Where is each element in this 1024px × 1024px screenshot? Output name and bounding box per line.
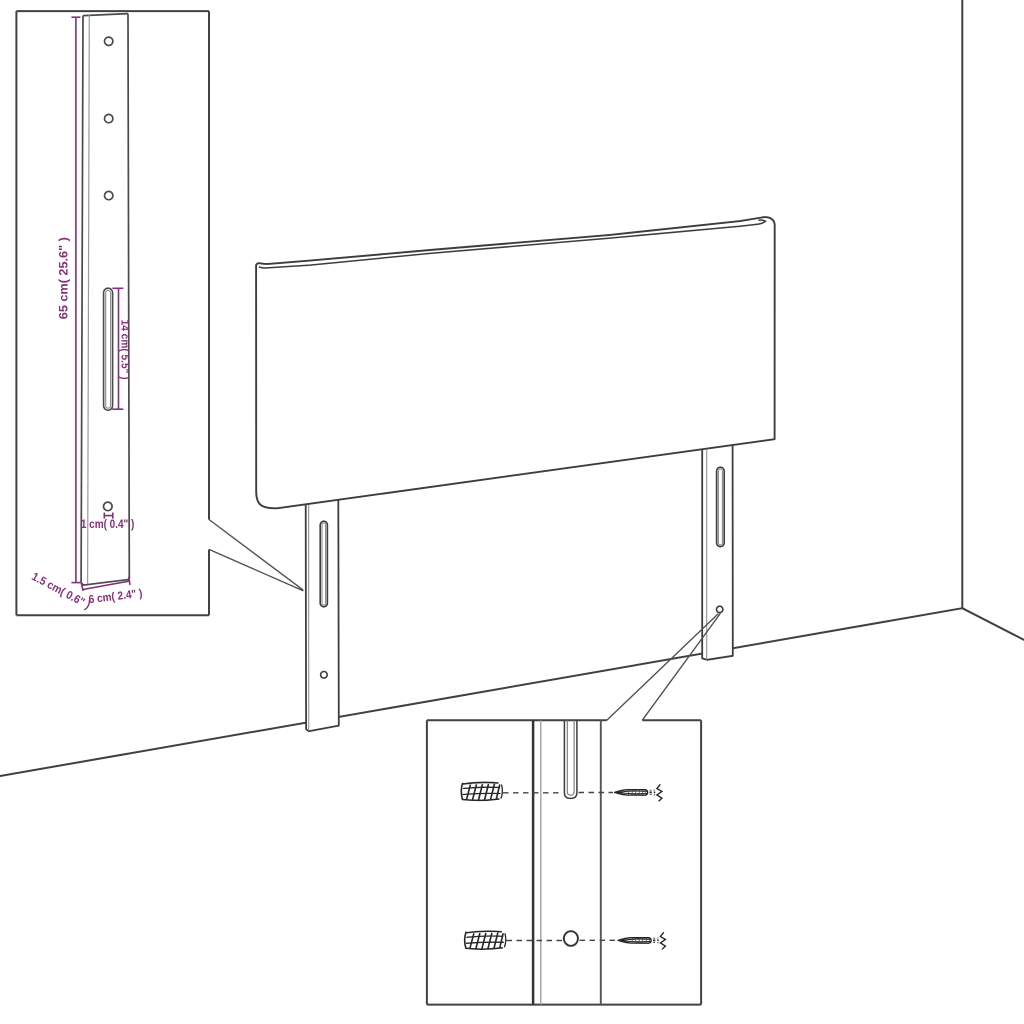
svg-text:65 cm( 25.6" ): 65 cm( 25.6" ) [56,237,70,319]
svg-text:1 cm( 0.4" ): 1 cm( 0.4" ) [81,519,135,531]
svg-text:14 cm( 5.5" ): 14 cm( 5.5" ) [119,320,131,380]
